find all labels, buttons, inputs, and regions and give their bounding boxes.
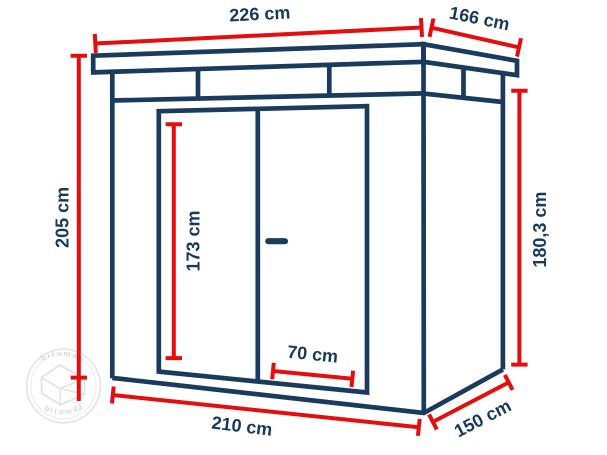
svg-text:226 cm: 226 cm bbox=[229, 3, 291, 26]
svg-text:166 cm: 166 cm bbox=[448, 3, 512, 35]
svg-text:150 cm: 150 cm bbox=[451, 395, 514, 441]
svg-text:173 cm: 173 cm bbox=[184, 210, 204, 271]
svg-text:i: i bbox=[50, 406, 54, 415]
svg-text:180,3 cm: 180,3 cm bbox=[530, 192, 550, 268]
svg-text:205 cm: 205 cm bbox=[53, 187, 73, 248]
svg-text:210 cm: 210 cm bbox=[210, 413, 273, 440]
svg-text:m: m bbox=[63, 349, 71, 359]
svg-text:m: m bbox=[64, 407, 72, 417]
svg-text:u: u bbox=[57, 349, 62, 358]
svg-text:70 cm: 70 cm bbox=[286, 342, 339, 367]
svg-text:t: t bbox=[54, 407, 58, 416]
